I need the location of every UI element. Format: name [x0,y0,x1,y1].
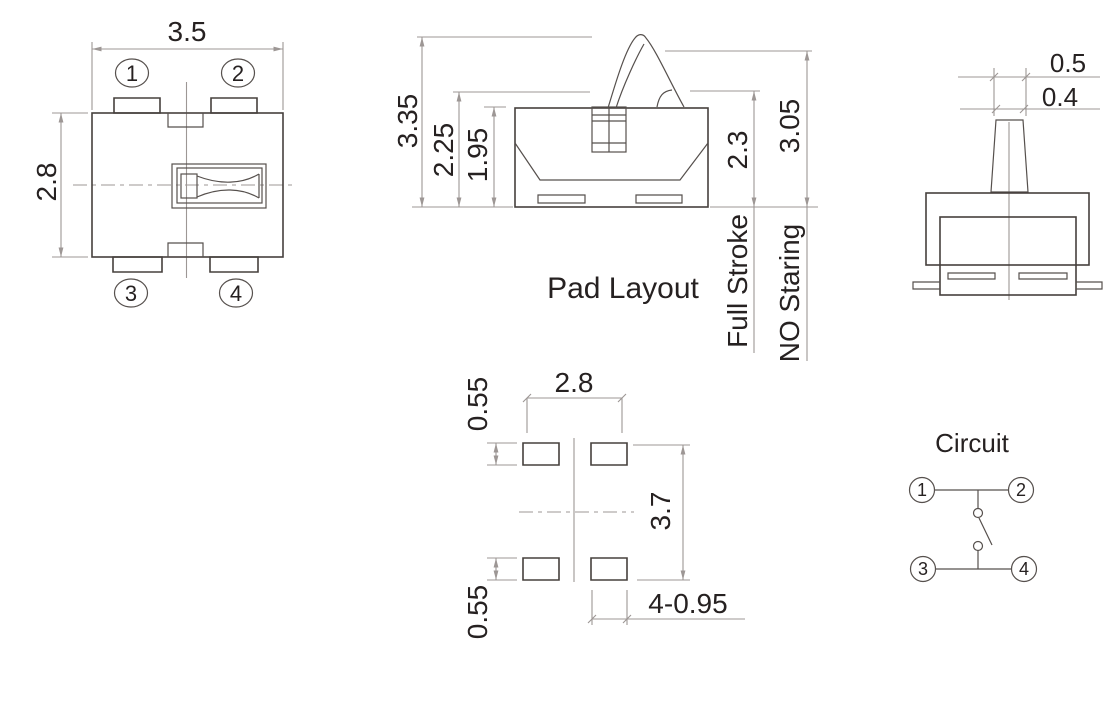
dimension-ticks [523,394,631,625]
body-chamfer-lines [515,143,708,180]
bottom-pads [538,195,682,203]
actuator-slider-block [181,174,197,198]
full-stroke-label: Full Stroke [722,214,753,348]
lever-tip-arc [657,90,672,107]
width-dimension-label: 3.5 [168,16,207,47]
dim-2-25-label: 2.25 [428,123,459,178]
contact-node-lower [974,542,983,551]
dimension-ticks [990,73,1030,113]
dim-pad-h-top-label: 0.55 [462,377,493,432]
actuator-bands [592,108,626,152]
pin3-number: 3 [125,281,137,306]
pin1-number: 1 [917,480,927,500]
dim-pad-h-bottom-label: 0.55 [462,585,493,640]
dim-pad-spec-label: 4-0.95 [648,588,727,619]
pin4-number: 4 [1019,559,1029,579]
height-dimension-label: 2.8 [31,163,62,202]
terminal-leads [913,282,1102,289]
dim-pitch-y-label: 3.7 [645,492,676,531]
body-back-outline [926,193,1089,265]
side-view: 0.5 0.4 [913,48,1102,300]
body-front-outline [940,217,1076,295]
pad-layout-title: Pad Layout [547,272,699,305]
technical-drawing: 3.5 2.8 1 2 3 4 3.35 [0,0,1120,722]
front-view: 3.35 2.25 1.95 2.3 3.05 Full Stroke NO S… [392,35,818,363]
contact-node-upper [974,509,983,518]
top-view: 3.5 2.8 1 2 3 4 [31,16,292,307]
pin-callouts: 1 2 3 4 [115,59,255,307]
dim-1-95-label: 1.95 [462,128,493,183]
actuator-spring-curves [197,174,259,198]
circuit-title: Circuit [935,428,1009,458]
pin3-number: 3 [918,559,928,579]
extension-lines [52,42,283,257]
circuit-diagram: Circuit 1 2 3 4 [910,428,1037,582]
pad-layout: Pad Layout 2.8 0.55 0.55 3.7 4-0.95 [462,272,745,639]
dim-3-05-label: 3.05 [774,99,805,154]
dim-2-3-label: 2.3 [722,131,753,170]
pin2-number: 2 [232,61,244,86]
lever-arm [608,35,684,108]
drawing-sheet: 3.5 2.8 1 2 3 4 3.35 [0,0,1120,722]
actuator-front-view [592,107,626,152]
dim-0-5-label: 0.5 [1050,48,1086,78]
circuit-wires [935,490,1011,569]
pin2-number: 2 [1016,480,1026,500]
lever-inner-curve [616,44,644,108]
switch-body-outline [515,108,708,207]
no-staring-label: NO Staring [774,224,805,363]
body-slots [948,273,1067,279]
dim-0-4-label: 0.4 [1042,82,1078,112]
dim-pitch-x-label: 2.8 [555,367,594,398]
pin4-number: 4 [230,281,242,306]
dim-3-35-label: 3.35 [392,94,423,149]
pin1-number: 1 [126,61,138,86]
